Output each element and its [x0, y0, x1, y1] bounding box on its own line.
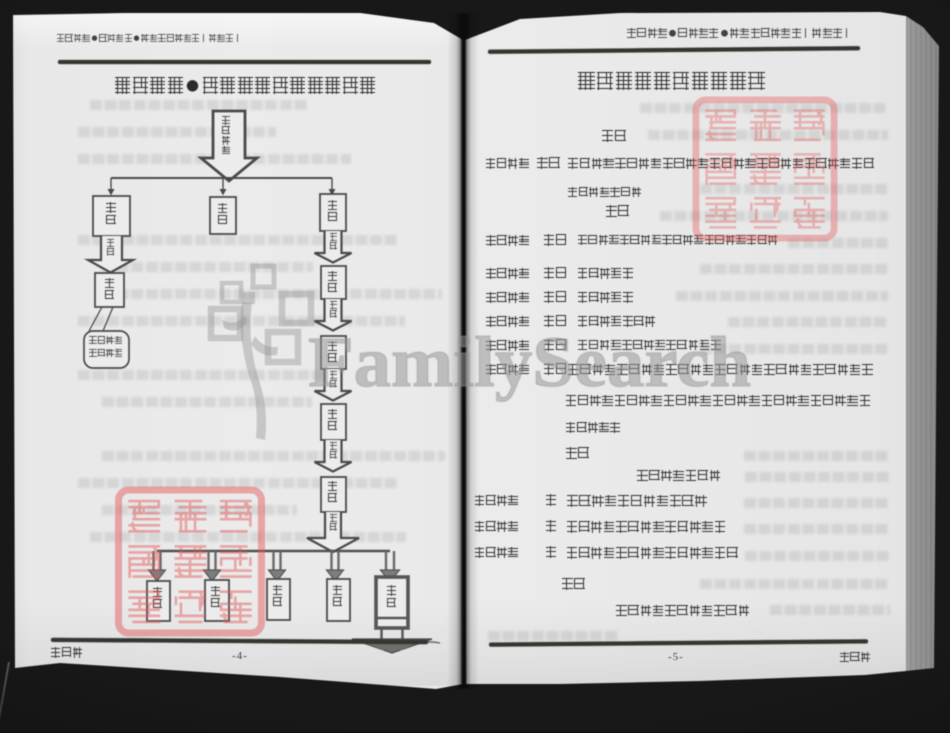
svg-text:FamilySearch: FamilySearch [308, 322, 751, 402]
